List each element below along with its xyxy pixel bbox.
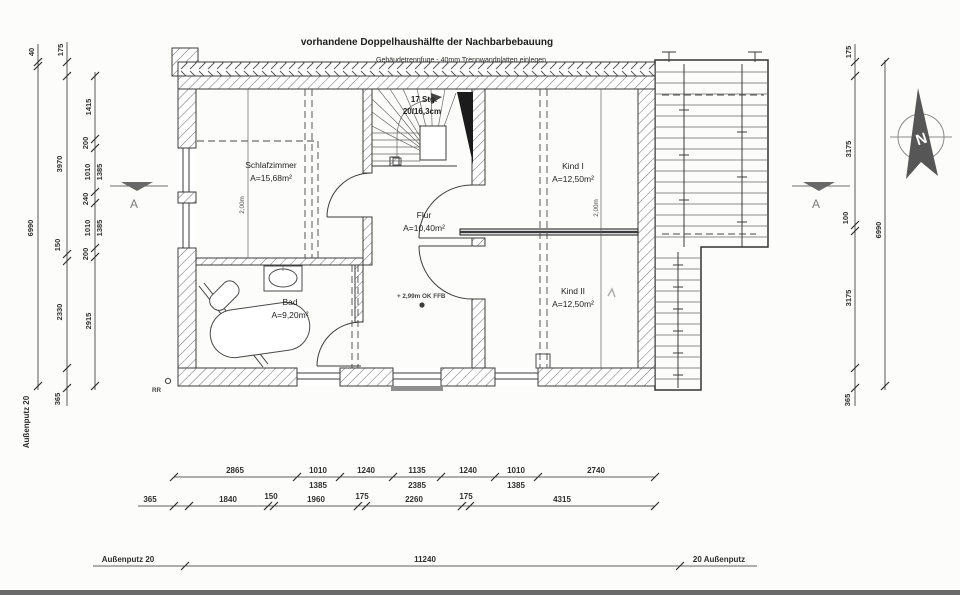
- staircase: 17 Stg. 20/16,3cm: [372, 89, 473, 165]
- room-name-bad: Bad: [282, 297, 297, 307]
- doors: [317, 173, 472, 366]
- bedroom-bath-wall: [196, 258, 363, 265]
- top-wall: [178, 76, 655, 89]
- dim-label: 150: [264, 492, 278, 501]
- dim-label: 6990: [874, 222, 883, 239]
- bottom-wall: [340, 368, 393, 386]
- dim-label: 1840: [219, 495, 237, 504]
- balcony-planks: [656, 72, 767, 379]
- dim-label: 365: [843, 394, 852, 407]
- room-name-schlafzimmer: Schlafzimmer: [245, 160, 297, 170]
- bottom-wall: [538, 368, 655, 386]
- level-label: + 2,99m OK FFB: [397, 293, 446, 300]
- dim-label: 1010: [507, 466, 525, 475]
- bedroom-door: [327, 173, 371, 217]
- dim-label: 1960: [307, 495, 325, 504]
- dim-label: 2865: [226, 466, 244, 475]
- dim-label: 1010: [83, 220, 92, 237]
- dim-chain-right-outer: 6990: [874, 58, 889, 390]
- left-window-2: [178, 203, 196, 248]
- bottom-wall: [178, 368, 297, 386]
- balcony: [655, 52, 768, 390]
- dim-label: 1415: [84, 99, 93, 116]
- dim-chain-right-inner: 175 3175 100 3175 365: [841, 44, 859, 406]
- room-area-schlafzimmer: A=15,68m²: [250, 173, 292, 183]
- plaster-label-bottom-left: Außenputz 20: [102, 555, 155, 564]
- section-letter: A: [130, 197, 138, 211]
- scan-edge: [0, 590, 960, 595]
- dim-label: 150: [53, 239, 62, 252]
- dim-chain-left-inner: 1415 200 1010 1385 240 1010 1385 200 291…: [81, 72, 104, 390]
- dim-label: 200: [81, 248, 90, 261]
- room-area-bad: A=9,20m²: [271, 310, 308, 320]
- dim-label: 1385: [95, 220, 104, 237]
- dim-label: 1010: [309, 466, 327, 475]
- dim-label: 2330: [55, 304, 64, 321]
- toilet: [206, 278, 242, 314]
- kid2-door: [419, 246, 472, 299]
- pencil-check-mark: [608, 289, 615, 297]
- plaster-label-left: Außenputz 20: [22, 395, 31, 448]
- room-name-flur: Flur: [417, 210, 432, 220]
- dim-chain-left-outer: 40 6990 Außenputz 20: [22, 44, 42, 448]
- dim-label: 175: [355, 492, 369, 501]
- dim-label: 1385: [95, 164, 104, 181]
- bedroom-hall-wall: [363, 217, 372, 265]
- room-name-kind1: Kind I: [562, 161, 584, 171]
- dim-label: 175: [56, 44, 65, 57]
- left-wall: [178, 248, 196, 386]
- party-wall-trennfuge: [178, 62, 655, 76]
- section-marker-right: A: [792, 182, 850, 211]
- bath-hall-wall: [355, 265, 363, 322]
- dim-chain-left-mid: 175 3970 150 2330 365: [53, 42, 71, 406]
- dim-chain-bottom-row1: 2865 1010 1385 1240 1135 2385 1240 1010 …: [170, 466, 659, 490]
- dim-label: 175: [844, 46, 853, 59]
- section-marker-left: A: [110, 182, 168, 211]
- left-window-1: [178, 148, 196, 192]
- dim-label: 2915: [84, 313, 93, 330]
- height-label: 2,00m: [239, 196, 246, 214]
- dim-chain-bottom-total: Außenputz 20 11240 20 Außenputz: [93, 555, 757, 570]
- dim-label: 1010: [83, 164, 92, 181]
- kids-partition-wall: [460, 229, 638, 235]
- bedroom-hall-wall: [363, 89, 372, 173]
- dim-label: 175: [459, 492, 473, 501]
- right-wall: [638, 89, 655, 386]
- dim-label: 4315: [553, 495, 571, 504]
- dim-label: 3970: [55, 156, 64, 173]
- room-name-kind2: Kind II: [561, 286, 585, 296]
- rr-label: RR: [152, 387, 162, 394]
- flue-element: [536, 354, 550, 368]
- level-marker-icon: [419, 302, 424, 307]
- bottom-window-2: [391, 368, 443, 391]
- dim-label: 2385: [408, 481, 426, 490]
- dim-chain-bottom-row2: 365 1840 150 1960 175 2260 175 4315: [138, 492, 659, 510]
- plaster-label-bottom-right: 20 Außenputz: [693, 555, 745, 564]
- drawing-title: vorhandene Doppelhaushälfte der Nachbarb…: [301, 37, 553, 48]
- left-wall: [178, 89, 196, 148]
- dim-label: 40: [27, 48, 36, 56]
- hall-kids-wall: [472, 89, 485, 185]
- room-area-flur: A=10,40m²: [403, 223, 445, 233]
- dim-label: 2740: [587, 466, 605, 475]
- stair-cut-triangle: [457, 92, 473, 164]
- dim-label: 6990: [26, 220, 35, 237]
- stair-newel: [420, 126, 446, 160]
- floor-plan-page: vorhandene Doppelhaushälfte der Nachbarb…: [0, 0, 960, 595]
- bottom-window-1: [297, 368, 340, 386]
- dim-label: 1240: [459, 466, 477, 475]
- dim-label: 365: [53, 393, 62, 406]
- floor-plan-drawing: vorhandene Doppelhaushälfte der Nachbarb…: [0, 0, 960, 595]
- dim-label: 240: [81, 193, 90, 206]
- dim-label: 365: [143, 495, 157, 504]
- dim-label: 2260: [405, 495, 423, 504]
- dim-label: 1135: [408, 466, 426, 475]
- dim-label: 100: [841, 212, 850, 225]
- downpipe-icon: [165, 378, 170, 383]
- sink: [264, 266, 302, 291]
- room-area-kind2: A=12,50m²: [552, 299, 594, 309]
- stair-steps-label: 17 Stg.: [411, 95, 437, 104]
- north-arrow: N: [890, 88, 952, 179]
- left-wall: [178, 192, 196, 203]
- height-label: 2,00m: [593, 199, 600, 217]
- dim-label: 3175: [844, 141, 853, 158]
- room-area-kind1: A=12,50m²: [552, 174, 594, 184]
- hall-kids-wall: [472, 238, 485, 246]
- dim-label: 1385: [507, 481, 525, 490]
- dim-total-label: 11240: [414, 555, 436, 564]
- window-sill: [391, 386, 443, 391]
- dim-label: 200: [81, 137, 90, 150]
- bottom-window-3: [495, 368, 538, 386]
- hall-kids-wall: [472, 299, 485, 368]
- bottom-wall: [441, 368, 495, 386]
- section-letter: A: [812, 197, 820, 211]
- dim-label: 1240: [357, 466, 375, 475]
- stair-rise-label: 20/16,3cm: [403, 107, 441, 116]
- dim-label: 1385: [309, 481, 327, 490]
- bath-door: [317, 322, 361, 366]
- dim-label: 3175: [844, 290, 853, 307]
